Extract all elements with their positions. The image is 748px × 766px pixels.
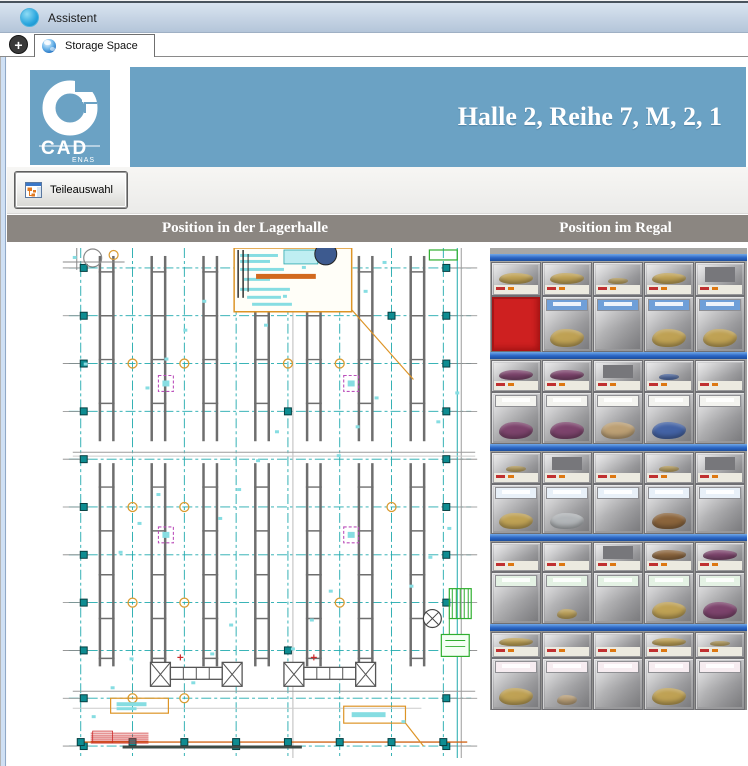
panels	[7, 242, 748, 765]
cadenas-logo: CAD ENAS	[30, 70, 110, 165]
tab-bar: + Storage Space	[0, 33, 748, 57]
bin-label	[546, 661, 588, 673]
bin-label	[699, 299, 741, 311]
storage-bin	[542, 658, 592, 710]
parts-selection-icon	[25, 182, 42, 198]
redacted-label	[603, 365, 634, 379]
bin-label	[698, 381, 742, 390]
storage-bin	[593, 572, 643, 624]
globe-icon	[42, 39, 56, 53]
storage-bin	[695, 296, 745, 352]
storage-bin	[644, 360, 694, 392]
bin-label	[648, 661, 690, 673]
bin-label	[597, 299, 639, 311]
redacted-label	[603, 546, 634, 559]
bin-label	[699, 575, 741, 587]
bin-label	[647, 381, 691, 390]
storage-bin	[695, 262, 745, 296]
storage-bin	[593, 392, 643, 444]
bin-label	[596, 647, 640, 656]
storage-bin	[644, 632, 694, 658]
titlebar[interactable]: Assistent	[0, 3, 748, 33]
storage-bin	[542, 296, 592, 352]
bin-label	[648, 395, 690, 407]
storage-bin	[695, 360, 745, 392]
storage-bin	[491, 484, 541, 534]
bin-label	[648, 487, 690, 499]
right-panel-header: Position im Regal	[559, 220, 672, 237]
storage-bin	[695, 484, 745, 534]
redacted-label	[705, 267, 736, 282]
storage-bin	[491, 632, 541, 658]
bin-label	[494, 285, 538, 294]
redacted-label	[552, 457, 583, 471]
storage-bin	[644, 296, 694, 352]
bin-label	[596, 381, 640, 390]
app-icon	[20, 8, 39, 27]
storage-bin	[695, 632, 745, 658]
storage-bin	[542, 542, 592, 572]
toolbar: Teileauswahl	[7, 167, 748, 214]
bin-label	[698, 561, 742, 570]
bin-label	[546, 299, 588, 311]
storage-bin	[644, 452, 694, 484]
bin-label	[596, 285, 640, 294]
tab-label: Storage Space	[65, 40, 138, 52]
bin-label	[596, 561, 640, 570]
banner-row: CAD ENAS Halle 2, Reihe 7, M, 2, 1	[7, 57, 748, 167]
storage-bin	[593, 296, 643, 352]
bin-label	[699, 395, 741, 407]
storage-bin	[593, 262, 643, 296]
storage-bin	[542, 360, 592, 392]
title-banner: Halle 2, Reihe 7, M, 2, 1	[130, 67, 746, 167]
bin-label	[597, 661, 639, 673]
storage-bin	[491, 392, 541, 444]
window-title: Assistent	[48, 11, 97, 25]
shelf-rail	[490, 352, 747, 359]
storage-bin	[695, 572, 745, 624]
logo-text-cad: CAD	[41, 138, 88, 159]
bin-label	[597, 395, 639, 407]
storage-bin	[593, 484, 643, 534]
storage-bin	[491, 542, 541, 572]
storage-bin	[644, 572, 694, 624]
shelf-photo-image	[490, 248, 747, 710]
bin-label	[597, 487, 639, 499]
highlighted-bin	[491, 296, 541, 352]
storage-bin	[542, 632, 592, 658]
storage-bin	[644, 542, 694, 572]
storage-bin	[695, 452, 745, 484]
bin-label	[647, 285, 691, 294]
storage-bin	[593, 658, 643, 710]
shelf-rail	[490, 444, 747, 451]
bin-label	[647, 647, 691, 656]
parts-selection-label: Teileauswahl	[50, 184, 113, 196]
bin-label	[648, 299, 690, 311]
storage-bin	[593, 452, 643, 484]
new-tab-button[interactable]: +	[9, 35, 28, 54]
tab-storage-space[interactable]: Storage Space	[34, 34, 155, 57]
storage-bin	[644, 484, 694, 534]
bin-label	[596, 473, 640, 482]
storage-bin	[542, 262, 592, 296]
storage-bin	[542, 392, 592, 444]
bin-contents	[608, 278, 628, 284]
shelf-rail	[490, 254, 747, 261]
bin-label	[495, 661, 537, 673]
bin-label	[546, 395, 588, 407]
bin-label	[648, 575, 690, 587]
bin-label	[494, 561, 538, 570]
storage-bin	[644, 658, 694, 710]
bin-label	[494, 647, 538, 656]
bin-label	[545, 647, 589, 656]
highlight-overlay	[492, 297, 540, 351]
bin-label	[545, 285, 589, 294]
storage-bin	[542, 452, 592, 484]
storage-bin	[644, 262, 694, 296]
storage-bin	[695, 392, 745, 444]
shelf-rail	[490, 534, 747, 541]
storage-location-title: Halle 2, Reihe 7, M, 2, 1	[458, 102, 722, 132]
storage-bin	[644, 392, 694, 444]
bin-label	[545, 473, 589, 482]
storage-bin	[491, 658, 541, 710]
redacted-label	[705, 457, 736, 471]
parts-selection-button[interactable]: Teileauswahl	[15, 172, 127, 208]
bin-label	[699, 661, 741, 673]
section-header-bar: Position in der Lagerhalle Position im R…	[7, 215, 748, 242]
bin-label	[647, 473, 691, 482]
storage-bin	[491, 262, 541, 296]
bin-label	[494, 473, 538, 482]
left-panel-header: Position in der Lagerhalle	[162, 220, 328, 237]
warehouse-floorplan-image	[62, 248, 478, 758]
bin-label	[698, 285, 742, 294]
bin-label	[546, 487, 588, 499]
bin-label	[698, 473, 742, 482]
storage-bin	[593, 542, 643, 572]
bin-label	[545, 381, 589, 390]
bin-label	[495, 395, 537, 407]
bin-label	[546, 575, 588, 587]
assistant-window: Assistent + Storage Space CAD ENAS	[0, 0, 748, 766]
storage-bin	[542, 572, 592, 624]
bin-label	[494, 381, 538, 390]
bin-label	[495, 487, 537, 499]
bin-label	[647, 561, 691, 570]
storage-bin	[491, 360, 541, 392]
shelf-rail	[490, 624, 747, 631]
bin-label	[597, 575, 639, 587]
storage-bin	[491, 572, 541, 624]
content-area: CAD ENAS Halle 2, Reihe 7, M, 2, 1	[0, 57, 748, 766]
storage-bin	[542, 484, 592, 534]
storage-bin	[593, 632, 643, 658]
bin-label	[495, 575, 537, 587]
storage-bin	[593, 360, 643, 392]
storage-bin	[695, 542, 745, 572]
window-left-border	[0, 57, 7, 766]
storage-bin	[491, 452, 541, 484]
bin-label	[699, 487, 741, 499]
bin-label	[698, 647, 742, 656]
bin-label	[545, 561, 589, 570]
logo-text-enas: ENAS	[72, 157, 95, 164]
storage-bin	[695, 658, 745, 710]
